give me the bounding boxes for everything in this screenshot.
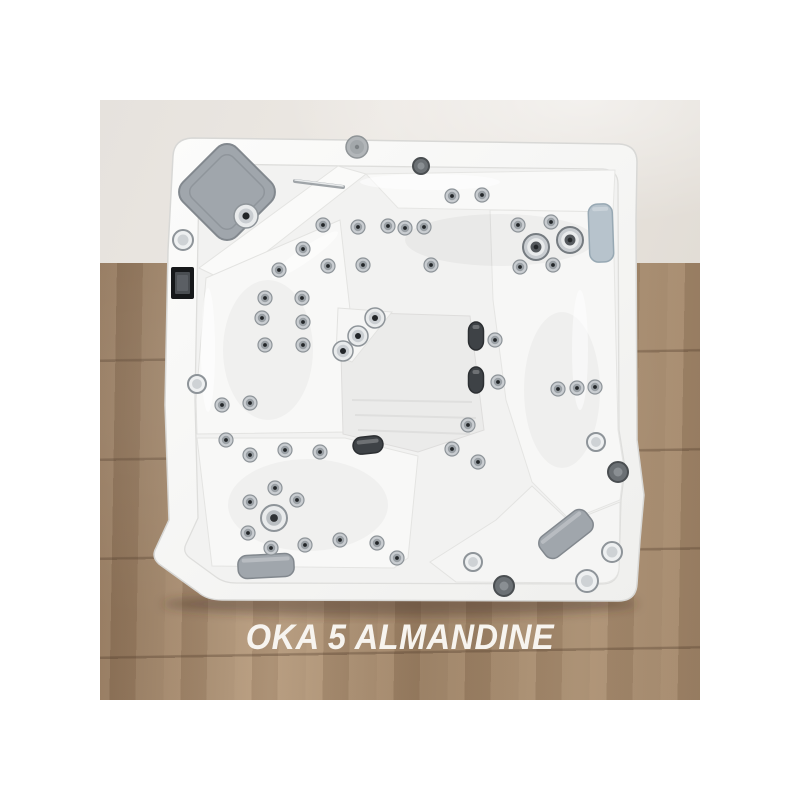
- product-image: OKA 5 ALMANDINE: [0, 0, 800, 800]
- jet-medium: [365, 308, 385, 328]
- product-title: OKA 5 ALMANDINE: [121, 620, 679, 655]
- rim-fixture-chrome: [173, 230, 193, 250]
- jet: [475, 188, 489, 202]
- jet: [488, 333, 502, 347]
- jet: [381, 219, 395, 233]
- rim-fixture-dark: [608, 462, 628, 482]
- jet: [264, 541, 278, 555]
- rim-fixture-chrome: [587, 433, 605, 451]
- jet: [296, 242, 310, 256]
- jet-medium: [348, 326, 368, 346]
- jet: [445, 442, 459, 456]
- jet-large: [523, 234, 549, 260]
- control-panel: [171, 267, 194, 299]
- product-card: OKA 5 ALMANDINE: [100, 100, 700, 700]
- jet: [491, 375, 505, 389]
- jet: [243, 396, 257, 410]
- jet: [546, 258, 560, 272]
- jet: [513, 260, 527, 274]
- jet: [570, 381, 584, 395]
- rim-fixture-chrome: [576, 570, 598, 592]
- dark-roll-upper: [469, 322, 484, 350]
- jet: [298, 538, 312, 552]
- jet: [398, 221, 412, 235]
- rim-fixture-chrome: [602, 542, 622, 562]
- jet: [290, 493, 304, 507]
- jet: [268, 481, 282, 495]
- jet: [588, 380, 602, 394]
- jet: [316, 218, 330, 232]
- jet: [296, 338, 310, 352]
- rim-fixture-dark: [413, 158, 429, 174]
- jet: [215, 398, 229, 412]
- jet: [296, 315, 310, 329]
- jet: [390, 551, 404, 565]
- rim-fixture-chrome: [464, 553, 482, 571]
- rim-speaker: [346, 136, 368, 158]
- jet: [544, 215, 558, 229]
- jet: [219, 433, 233, 447]
- jet-large: [557, 227, 583, 253]
- right-headrest: [588, 204, 614, 263]
- dark-roll-lower: [469, 367, 484, 393]
- jet: [351, 220, 365, 234]
- jet: [471, 455, 485, 469]
- rim-fixture-chrome: [188, 375, 206, 393]
- jet: [258, 338, 272, 352]
- jet: [424, 258, 438, 272]
- jet: [295, 291, 309, 305]
- jet: [461, 418, 475, 432]
- jet: [511, 218, 525, 232]
- jet: [356, 258, 370, 272]
- drain-jet: [261, 505, 287, 531]
- jet: [313, 445, 327, 459]
- jet: [243, 448, 257, 462]
- jet-medium: [333, 341, 353, 361]
- jet: [258, 291, 272, 305]
- jet: [333, 533, 347, 547]
- jet: [255, 311, 269, 325]
- jet: [551, 382, 565, 396]
- dark-bottom-pillow: [352, 435, 384, 455]
- jet: [445, 189, 459, 203]
- jet: [417, 220, 431, 234]
- jet: [370, 536, 384, 550]
- rim-fixture-dark: [494, 576, 514, 596]
- jet: [241, 526, 255, 540]
- sheen-highlight: [201, 288, 215, 412]
- jet: [321, 259, 335, 273]
- bottom-left: [237, 553, 294, 579]
- sheen-highlight: [360, 174, 500, 190]
- jet: [272, 263, 286, 277]
- hot-tub-illustration: [100, 100, 700, 700]
- jet-medium: [234, 204, 258, 228]
- jet: [278, 443, 292, 457]
- jet: [243, 495, 257, 509]
